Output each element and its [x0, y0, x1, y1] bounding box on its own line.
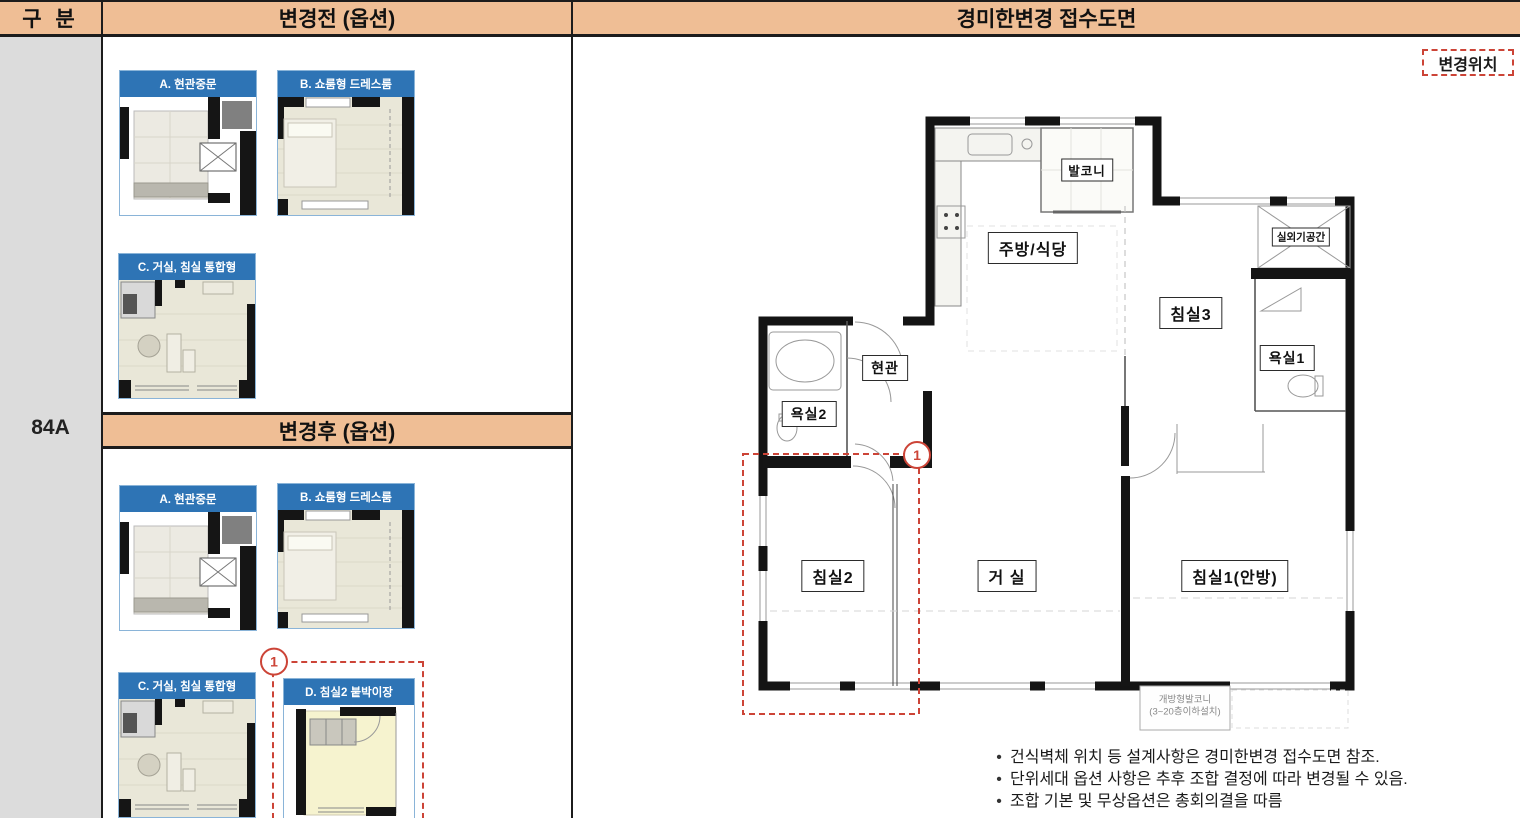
bullet-icon: • — [988, 769, 1010, 791]
room-label-bath2: 욕실2 — [782, 401, 837, 427]
option-card-before-a: A. 현관중문 — [119, 70, 257, 216]
option-card-title: C. 거실, 침실 통합형 — [119, 673, 255, 699]
unit-type-label: 84A — [31, 416, 70, 440]
option-card-image-dressroom — [278, 510, 414, 628]
change-marker-1: 1 — [260, 648, 288, 676]
option-card-image-living — [119, 280, 255, 398]
room-label-entrance: 현관 — [862, 355, 908, 381]
option-card-before-b: B. 쇼룸형 드레스룸 — [277, 70, 415, 216]
room-label-balcony: 발코니 — [1061, 159, 1113, 182]
option-card-title: A. 현관중문 — [120, 486, 256, 512]
room-label-bedroom2: 침실2 — [801, 560, 864, 592]
bullet-icon: • — [988, 791, 1010, 813]
footnote-item: • 건식벽체 위치 등 설계사항은 경미한변경 접수도면 참조. — [988, 747, 1520, 769]
open-balcony-line2: (3~20층이하설치) — [1149, 707, 1220, 719]
header-category: 구 분 — [0, 0, 103, 37]
room-label-outdoor-unit: 실외기공간 — [1272, 228, 1330, 247]
option-card-after-c: C. 거실, 침실 통합형 — [118, 672, 256, 818]
header-before-options: 변경전 (옵션) — [103, 0, 573, 37]
room-label-living: 거 실 — [978, 560, 1037, 592]
open-balcony-note: 개방형발코니 (3~20층이하설치) — [1149, 695, 1220, 720]
after-options-header: 변경후 (옵션) — [103, 412, 571, 449]
option-d-highlight-box: 1 D. 침실2 붙박이장 — [272, 661, 424, 818]
bullet-icon: • — [988, 747, 1010, 769]
change-location-badge: 변경위치 — [1422, 49, 1514, 76]
footnote-item: • 조합 기본 및 무상옵션은 총회의결을 따름 — [988, 791, 1520, 813]
option-card-title: B. 쇼룸형 드레스룸 — [278, 71, 414, 97]
option-card-title: B. 쇼룸형 드레스룸 — [278, 484, 414, 510]
option-card-after-d: D. 침실2 붙박이장 — [283, 678, 415, 818]
unit-type-cell: 84A — [0, 37, 103, 818]
header-accepted-plan: 경미한변경 접수도면 — [573, 0, 1520, 37]
change-marker-1: 1 — [903, 441, 931, 469]
option-card-image-living — [119, 699, 255, 817]
option-card-title: C. 거실, 침실 통합형 — [119, 254, 255, 280]
room-label-bedroom3: 침실3 — [1159, 297, 1222, 329]
footnote-item: • 단위세대 옵션 사항은 추후 조합 결정에 따라 변경될 수 있음. — [988, 769, 1520, 791]
option-card-after-b: B. 쇼룸형 드레스룸 — [277, 483, 415, 629]
option-card-image-dressroom — [278, 97, 414, 215]
option-card-after-a: A. 현관중문 — [119, 485, 257, 631]
option-card-before-c: C. 거실, 침실 통합형 — [118, 253, 256, 399]
option-change-sheet: 구 분 변경전 (옵션) 경미한변경 접수도면 84A A. 현관중문 — [0, 0, 1520, 818]
room-label-kitchen: 주방/식당 — [988, 232, 1078, 264]
option-card-title: A. 현관중문 — [120, 71, 256, 97]
room-label-bath1: 욕실1 — [1260, 345, 1315, 371]
footnote-text: 조합 기본 및 무상옵션은 총회의결을 따름 — [1010, 791, 1282, 813]
footnote-text: 건식벽체 위치 등 설계사항은 경미한변경 접수도면 참조. — [1010, 747, 1380, 769]
room-label-bedroom1: 침실1(안방) — [1181, 560, 1288, 592]
plan-column: 변경위치 — [573, 37, 1520, 818]
option-card-title: D. 침실2 붙박이장 — [284, 679, 414, 705]
footnotes: • 건식벽체 위치 등 설계사항은 경미한변경 접수도면 참조. • 단위세대 … — [988, 747, 1520, 813]
option-card-image-closet — [284, 705, 414, 818]
option-card-image-entrance — [120, 97, 256, 215]
floor-plan: 발코니 주방/식당 침실3 실외기공간 현관 욕실1 욕실2 침실2 거 실 침… — [735, 106, 1375, 736]
open-balcony-line1: 개방형발코니 — [1149, 695, 1220, 707]
options-column: A. 현관중문 B. 쇼룸형 드레스룸 — [103, 37, 573, 818]
footnote-text: 단위세대 옵션 사항은 추후 조합 결정에 따라 변경될 수 있음. — [1010, 769, 1408, 791]
option-card-image-entrance — [120, 512, 256, 630]
